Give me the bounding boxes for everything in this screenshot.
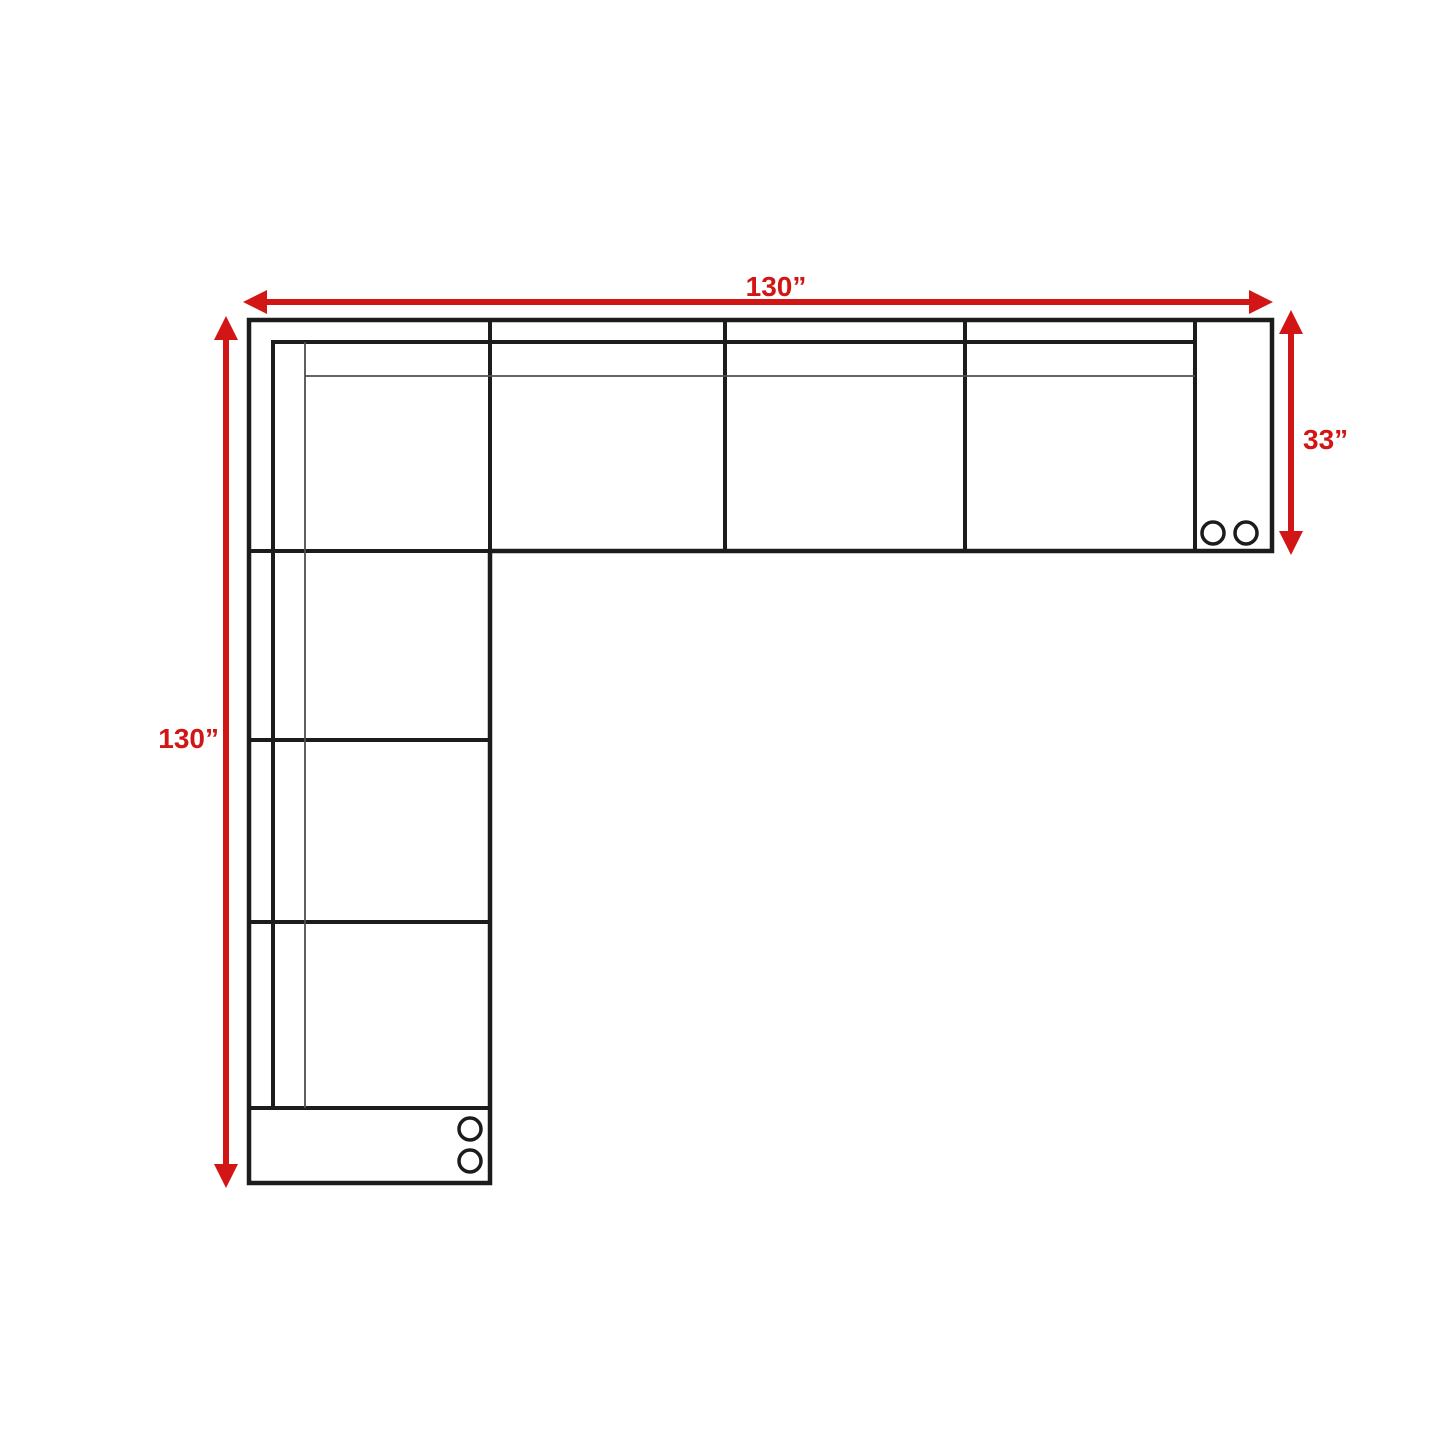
dimension-label-height: 130” xyxy=(158,723,219,754)
arrowhead-down-icon xyxy=(1279,531,1303,555)
cupholder-icon xyxy=(1202,522,1224,544)
dimension-arrow-right-depth xyxy=(1279,310,1303,555)
dimension-label-depth: 33” xyxy=(1303,424,1348,455)
sofa-dimension-diagram: 130” 130” 33” xyxy=(0,0,1445,1445)
arrowhead-down-icon xyxy=(214,1164,238,1188)
sectional-sofa-drawing: 130” 130” 33” xyxy=(0,0,1445,1445)
dimension-label-width: 130” xyxy=(746,271,807,302)
arrowhead-up-icon xyxy=(1279,310,1303,334)
arrowhead-up-icon xyxy=(214,316,238,340)
arrow-shaft xyxy=(223,336,229,1168)
cupholder-icon xyxy=(459,1150,481,1172)
sofa-linework-group xyxy=(249,320,1272,1183)
sofa-outer-outline xyxy=(249,320,1272,1183)
arrow-shaft xyxy=(1288,330,1294,533)
cupholder-icon xyxy=(459,1118,481,1140)
cushion-thin-line-group xyxy=(305,342,1195,1108)
backrest-inner-line xyxy=(273,342,1195,1108)
cupholder-icon xyxy=(1235,522,1257,544)
arrowhead-right-icon xyxy=(1249,290,1273,314)
arrowhead-left-icon xyxy=(243,290,267,314)
